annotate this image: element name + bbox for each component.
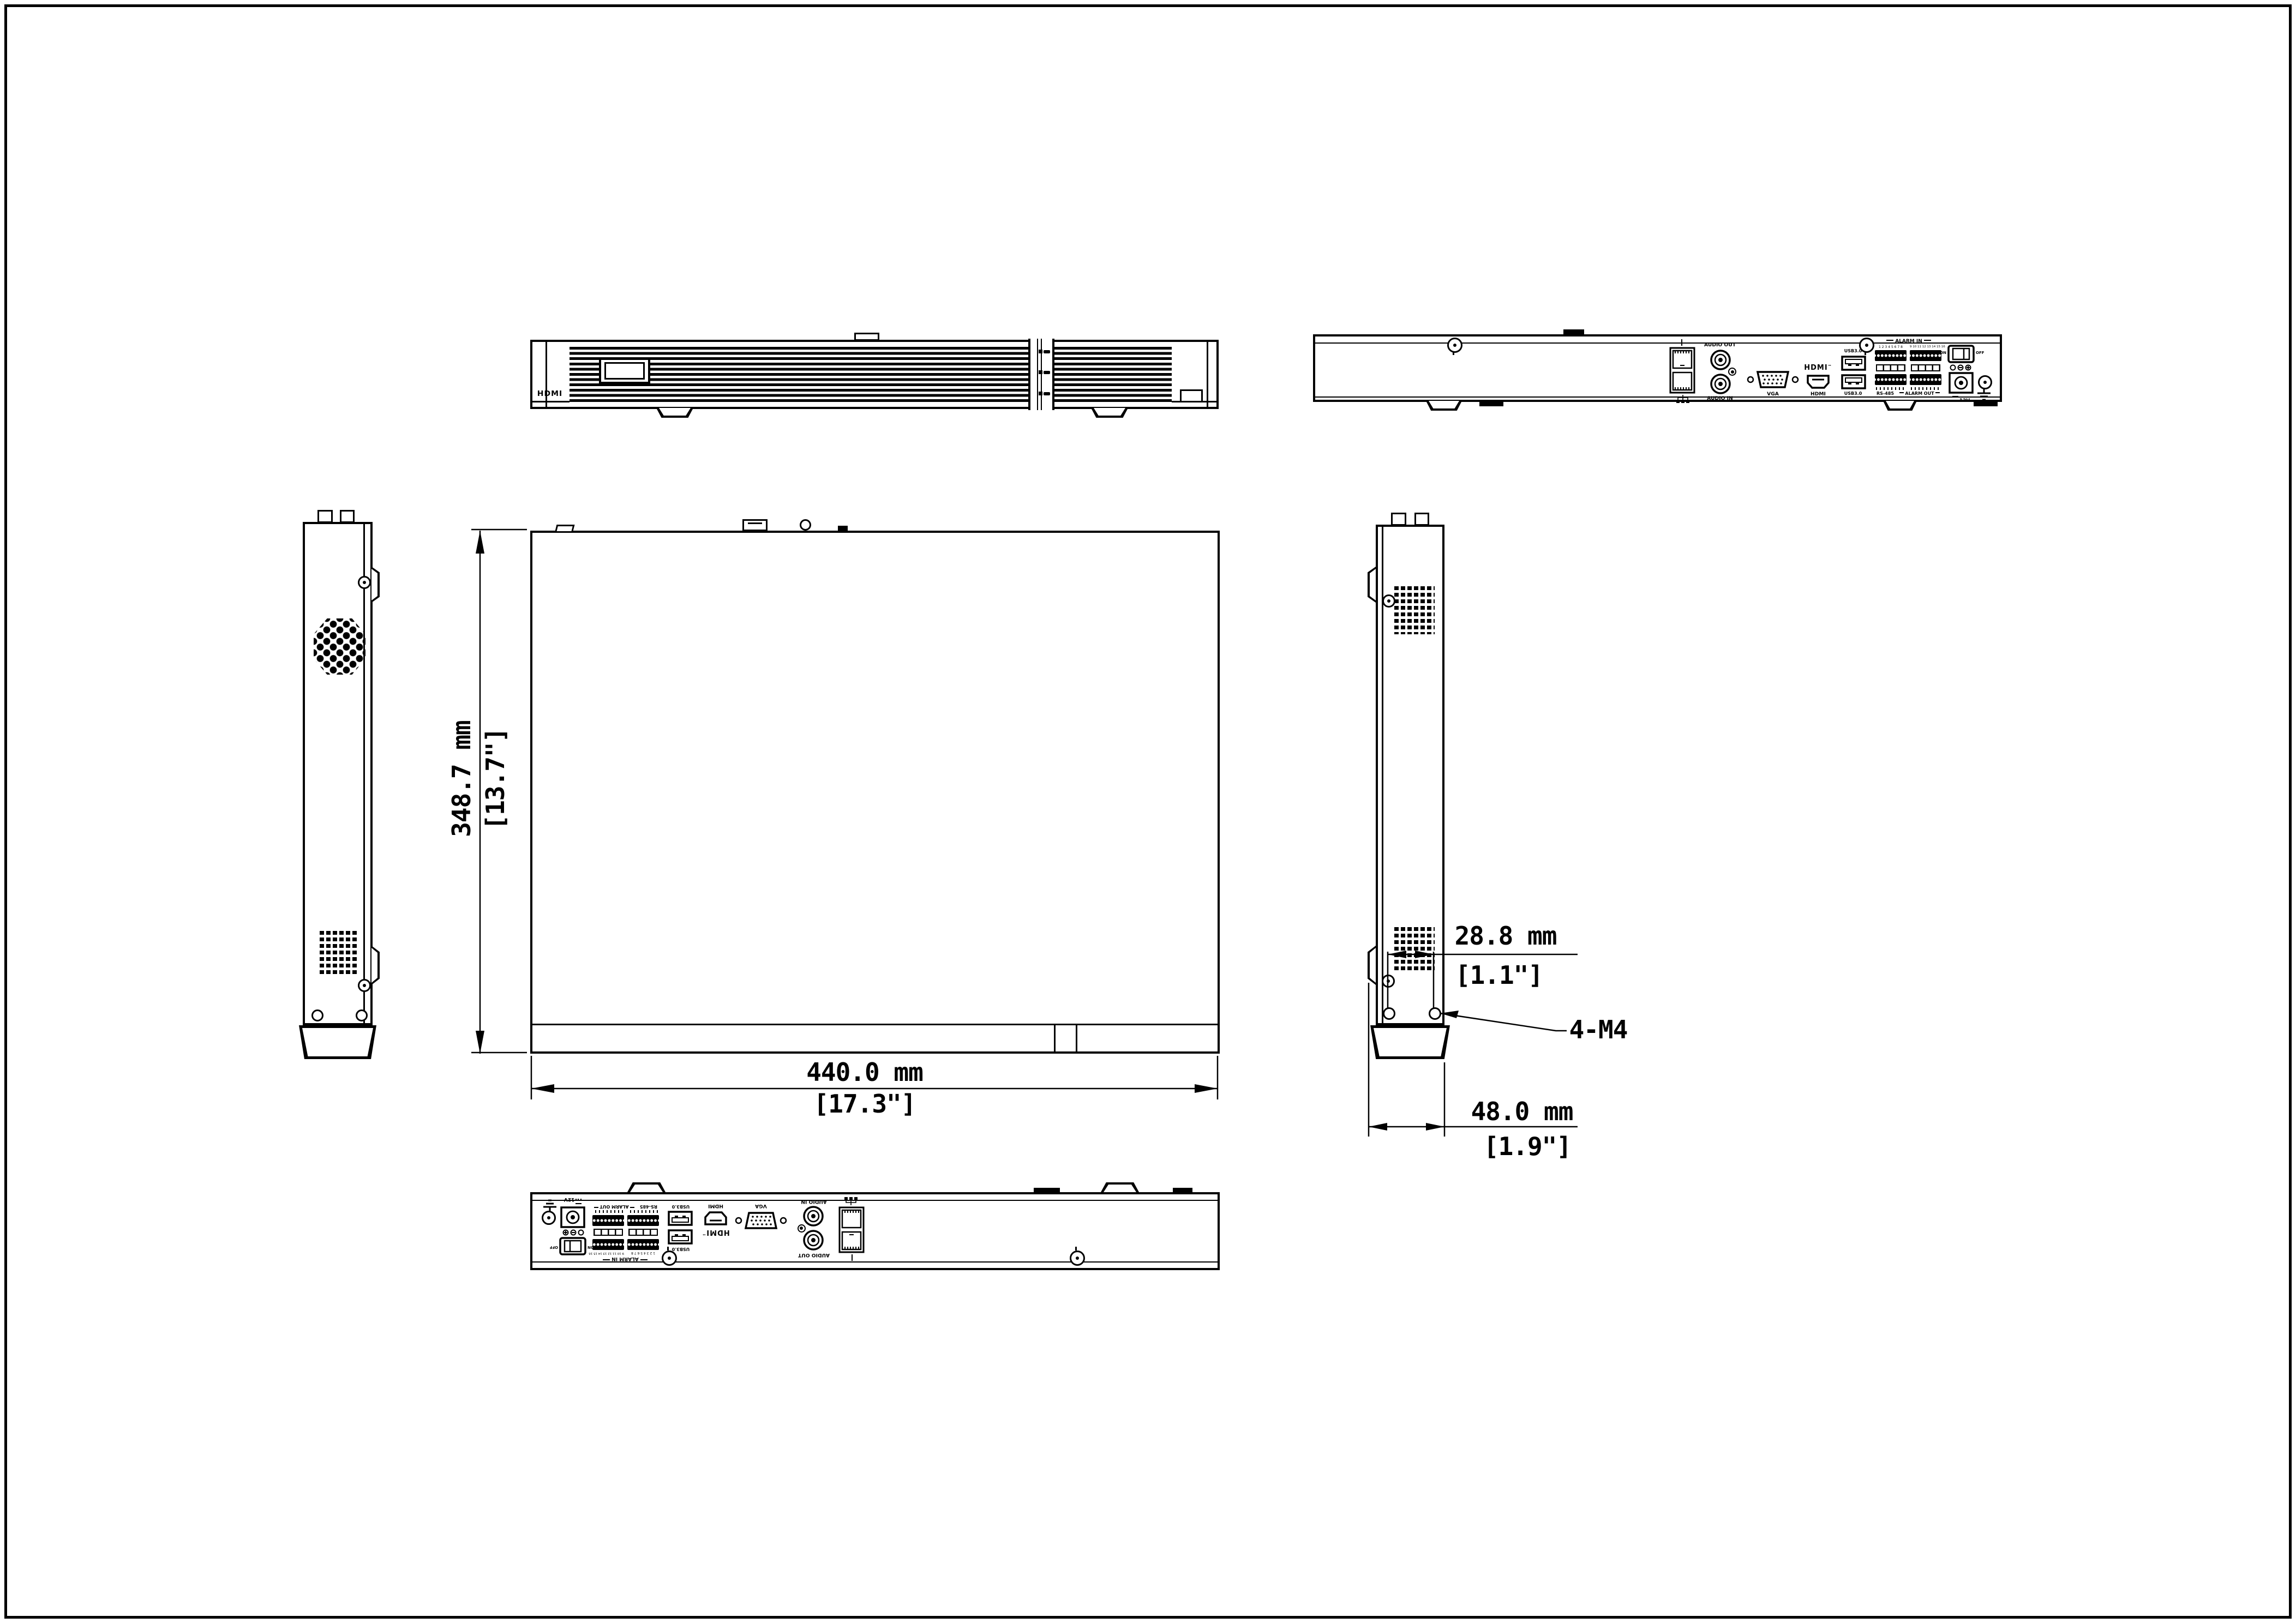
mount-screws-label: 4-M4 <box>1516 1017 1680 1043</box>
side-screw <box>1382 975 1395 988</box>
dc-power-jack <box>1949 372 1974 394</box>
mount-tab <box>371 946 380 985</box>
mount-hole <box>1429 1007 1441 1020</box>
fuse-icons <box>1950 364 1971 371</box>
ground-icon <box>1976 388 1992 401</box>
side-honeycomb-vent <box>314 618 365 675</box>
dim-hole-spacing-mm-label: 28.8 mm <box>1424 923 1587 949</box>
ethernet-port <box>1669 347 1695 394</box>
side-hole <box>311 1009 323 1021</box>
power-on-label: ON <box>1934 351 1946 355</box>
dimension-drawing-canvas: HDMI <box>0 0 2296 1623</box>
front-hdmi-logo: HDMI <box>533 390 566 398</box>
network-icon <box>844 1197 858 1205</box>
front-foot <box>1091 408 1128 418</box>
status-led-icon <box>1039 392 1042 395</box>
mount-hole <box>1383 1007 1395 1020</box>
side-base-foot <box>1370 1025 1450 1059</box>
vga-port <box>735 1211 787 1230</box>
front-ir-window <box>1180 389 1203 402</box>
front-foot <box>656 408 693 418</box>
dc-12v-label: 12V <box>554 1197 592 1204</box>
alarm-in-numbers-left: 1 2 3 4 5 6 7 8 <box>1875 346 1907 349</box>
usb-bottom-label: USB3.0 <box>1838 392 1868 396</box>
front-top-tab <box>854 333 879 341</box>
audio-out-port <box>802 1229 824 1251</box>
dc-power-jack <box>560 1206 585 1228</box>
alarm-out-label: ALARM OUT <box>1897 392 1943 396</box>
network-icon <box>1676 395 1690 404</box>
audio-out-label: AUDIO OUT <box>1697 342 1743 348</box>
dim-width-in-label: [17.3"] <box>783 1091 946 1117</box>
hdmi-logo: HDMI™ <box>1800 364 1836 372</box>
side-square-vent <box>1392 586 1435 634</box>
audio-in-port <box>802 1205 824 1227</box>
bottom-foot <box>1101 1182 1139 1192</box>
audio-out-label: AUDIO OUT <box>791 1252 837 1258</box>
top-knob <box>800 519 811 531</box>
side-screw <box>358 576 371 589</box>
status-led-icon <box>1039 350 1042 353</box>
alarm-terminal-block: ALARM IN 1 2 3 4 5 6 7 8 9 10 11 12 13 1… <box>591 1200 659 1261</box>
vga-port <box>1747 370 1799 389</box>
audio-in-port <box>1710 373 1731 395</box>
hdmi-port <box>1806 374 1831 389</box>
dim-depth-in-label: [1.9"] <box>1446 1133 1609 1159</box>
bottom-foot <box>627 1182 666 1192</box>
rear-screw <box>1447 338 1462 353</box>
alarm-in-label: ALARM IN <box>1895 339 1922 344</box>
rs485-label: RS-485 <box>1873 392 1898 396</box>
dim-hole-spacing-in-label: [1.1"] <box>1417 962 1581 988</box>
side-square-vent <box>317 931 357 976</box>
alarm-in-numbers-right: 9 10 11 12 13 14 15 16 <box>1910 346 1941 349</box>
hdmi-port-label: HDMI <box>1805 392 1832 397</box>
vga-label: VGA <box>1758 392 1788 397</box>
usb-top-label: USB3.0 <box>1838 349 1868 353</box>
dim-depth-mm-label: 48.0 mm <box>1440 1098 1604 1125</box>
bottom-ports-cluster: AUDIO OUT AUDIO IN VGA HDMI™ <box>537 1198 865 1262</box>
usb-top-label: USB3.0 <box>666 1247 696 1251</box>
usb-port <box>1841 374 1866 389</box>
hdmi-logo: HDMI™ <box>698 1228 734 1236</box>
status-led-icon <box>1039 370 1042 374</box>
side-screw <box>1382 594 1395 608</box>
mount-tab <box>1368 567 1376 603</box>
side-hole <box>356 1009 368 1021</box>
hdmi-port <box>703 1211 728 1226</box>
ground-screw <box>542 1211 556 1225</box>
audio-in-label: AUDIO IN <box>791 1199 837 1204</box>
power-switch <box>1947 345 1975 363</box>
side-base-foot <box>299 1025 376 1059</box>
power-off-label: OFF <box>1976 351 1990 355</box>
bottom-screw <box>1070 1251 1085 1266</box>
dim-height-mm-label: 348.7 mm <box>448 697 475 861</box>
fuse-icons <box>562 1229 584 1236</box>
alarm-terminal-block: ALARM IN 1 2 3 4 5 6 7 8 9 10 11 12 13 1… <box>1875 339 1943 400</box>
dim-height-in-label: [13.7"] <box>482 697 508 861</box>
rear-ports-cluster: AUDIO OUT AUDIO IN <box>1669 338 1997 402</box>
alarm-in-label: ALARM IN <box>612 1256 639 1261</box>
vga-label: VGA <box>746 1203 776 1209</box>
usb-port <box>668 1229 693 1245</box>
front-vent-louvers <box>569 347 1172 402</box>
ethernet-port <box>838 1206 865 1253</box>
mount-tab <box>1368 946 1376 985</box>
usb-port <box>668 1211 693 1226</box>
usb-bottom-label: USB3.0 <box>666 1204 696 1209</box>
rear-foot <box>1426 401 1462 411</box>
side-screw <box>358 979 371 992</box>
mount-tab <box>371 567 380 603</box>
dc-12v-label: 12V <box>1942 396 1980 404</box>
ground-screw <box>1978 375 1992 389</box>
audio-out-port <box>1710 349 1731 371</box>
dim-width-mm-label: 440.0 mm <box>783 1059 946 1085</box>
hdmi-port-label: HDMI <box>702 1203 729 1209</box>
power-switch <box>559 1237 586 1255</box>
usb-port <box>1841 356 1866 371</box>
ground-icon <box>542 1199 558 1212</box>
audio-in-label: AUDIO IN <box>1697 396 1743 401</box>
